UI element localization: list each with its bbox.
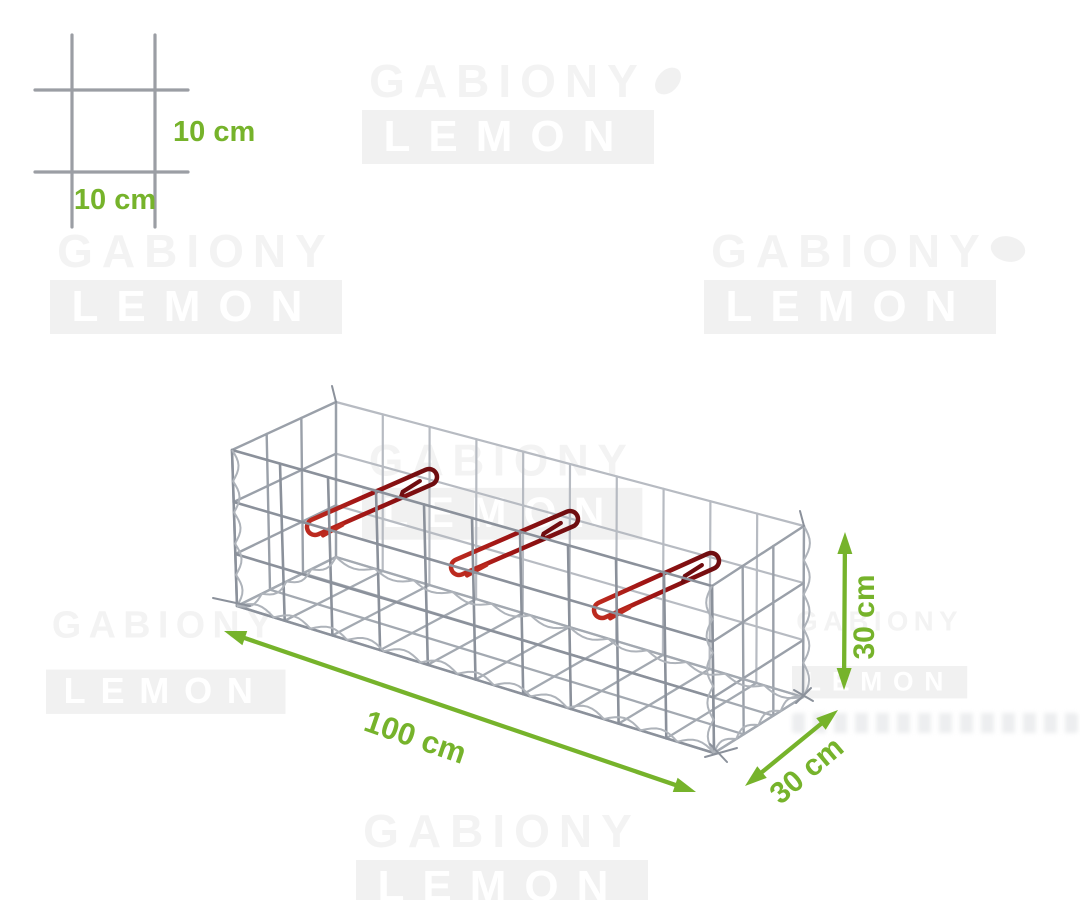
- arrowhead: [224, 631, 247, 645]
- arrowhead: [837, 668, 852, 690]
- gabion-3d-render: 100 cm30 cm30 cm10 cm10 cm: [0, 0, 1080, 900]
- mesh-size-diagram: 10 cm10 cm: [35, 35, 255, 227]
- width-dimension-label: 30 cm: [764, 731, 850, 811]
- spacer-clips: [307, 469, 719, 618]
- mesh-vertical-spacing-label: 10 cm: [173, 116, 255, 148]
- height-dimension-label: 30 cm: [848, 574, 881, 659]
- arrowhead: [673, 778, 696, 792]
- dimension-annotations: 100 cm30 cm30 cm: [224, 532, 881, 811]
- gabion-product-image: GABIONY LEMON GABIONY LEMON GABIONY LEMO…: [0, 0, 1080, 900]
- mesh-horizontal-spacing-label: 10 cm: [74, 184, 156, 216]
- length-dimension-label: 100 cm: [360, 703, 471, 770]
- arrowhead: [837, 532, 852, 554]
